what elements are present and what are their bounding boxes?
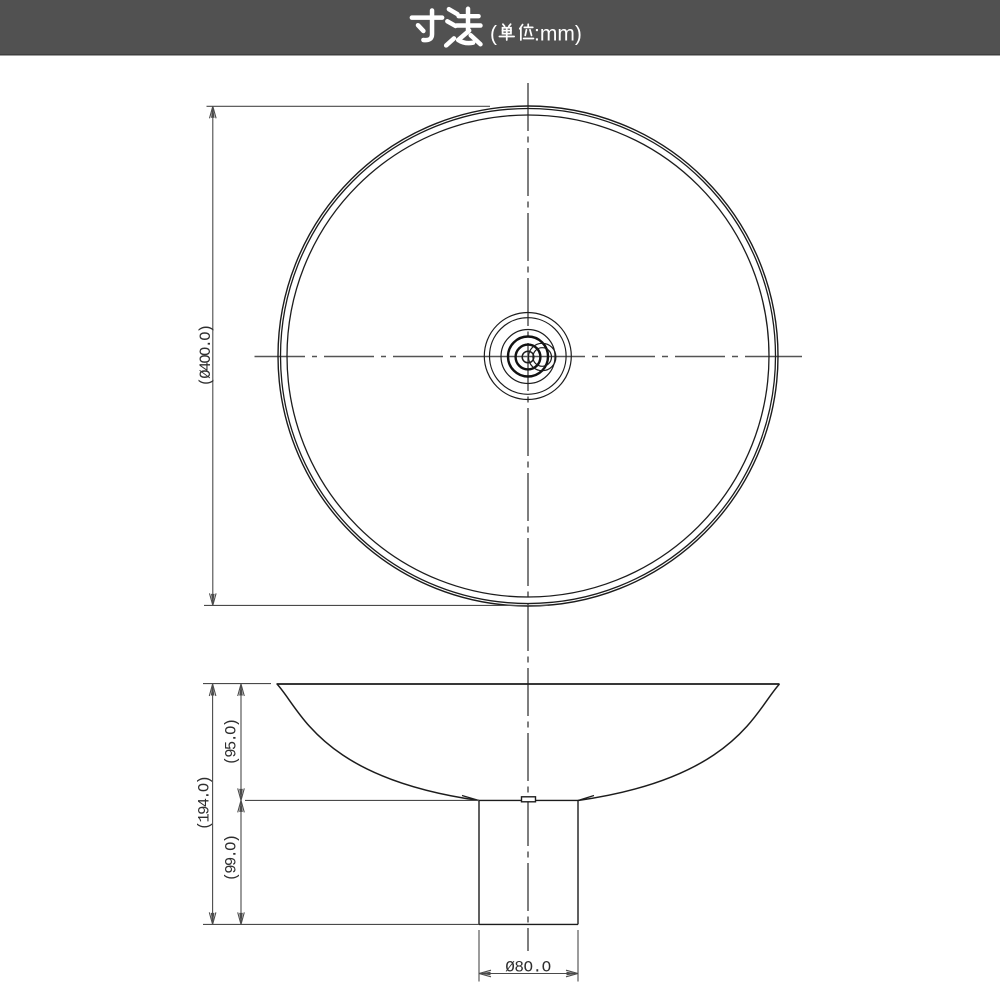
svg-text:(194.O): (194.O) — [196, 777, 214, 830]
svg-text:(99.O): (99.O) — [222, 836, 240, 882]
svg-text::mm): :mm) — [534, 23, 582, 46]
svg-text:Ø8O.O: Ø8O.O — [505, 959, 551, 977]
svg-text:(Ø4OO.O): (Ø4OO.O) — [197, 326, 215, 387]
svg-text:(: ( — [490, 23, 497, 46]
svg-text:(95.O): (95.O) — [222, 720, 240, 766]
